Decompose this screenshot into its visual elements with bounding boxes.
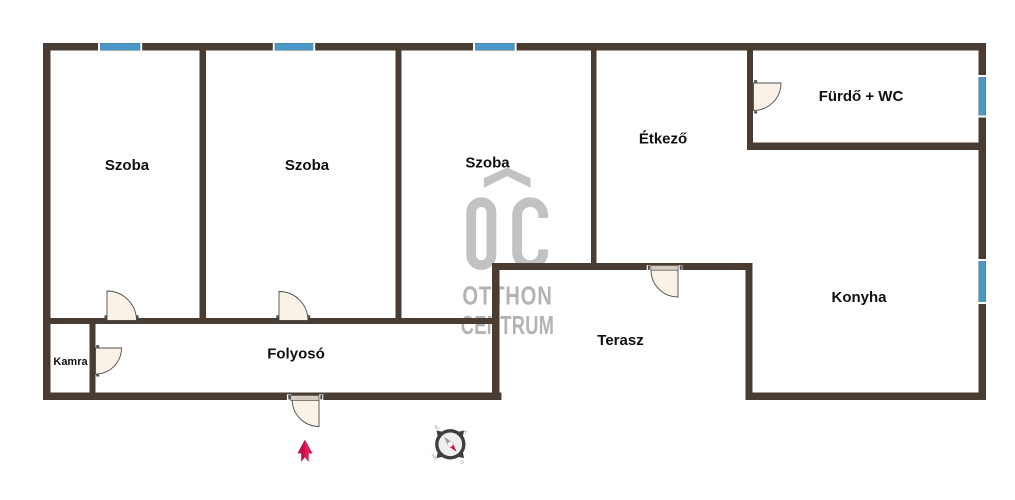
- svg-text:Szoba: Szoba: [465, 155, 510, 172]
- svg-text:Szoba: Szoba: [285, 157, 330, 174]
- svg-text:Terasz: Terasz: [597, 332, 643, 349]
- svg-text:Konyha: Konyha: [831, 289, 887, 306]
- svg-text:OTTHON: OTTHON: [462, 281, 552, 310]
- svg-text:Kamra: Kamra: [53, 356, 88, 368]
- svg-text:CENTRUM: CENTRUM: [461, 311, 554, 340]
- svg-text:Folyosó: Folyosó: [267, 346, 325, 363]
- svg-text:Fürdő + WC: Fürdő + WC: [819, 88, 904, 105]
- svg-text:Étkező: Étkező: [639, 131, 687, 148]
- svg-text:Szoba: Szoba: [105, 157, 150, 174]
